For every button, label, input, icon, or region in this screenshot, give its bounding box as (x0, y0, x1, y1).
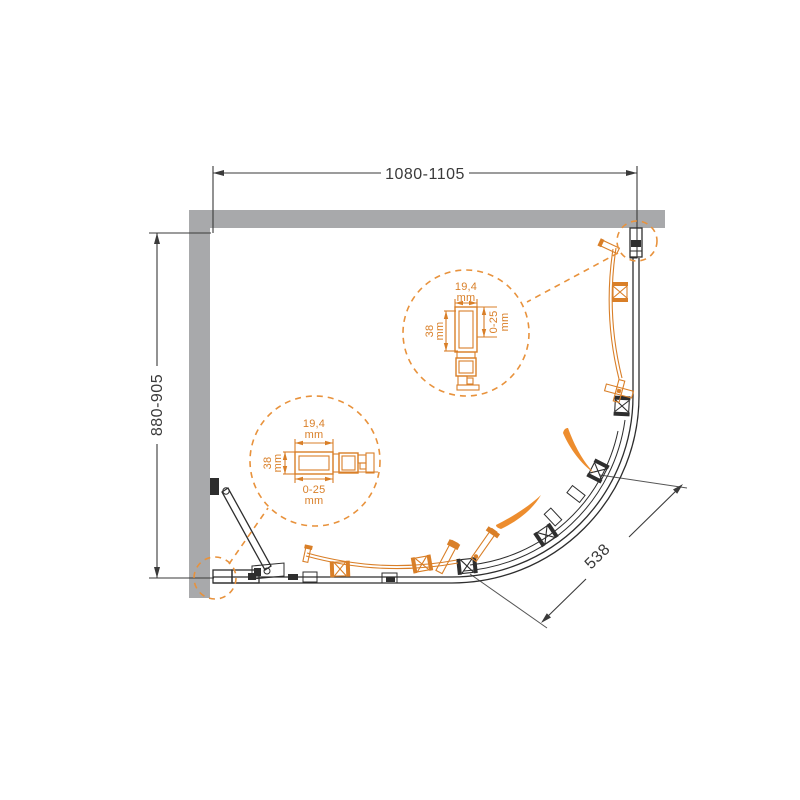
walls (189, 210, 665, 598)
door-bracket-orange (603, 377, 636, 405)
door-edge-profile-orange (434, 539, 461, 575)
shower-enclosure-plan-drawing: 1080-1105 880-905 538 (0, 0, 800, 800)
arrowhead (154, 567, 160, 578)
detail-width-unit: mm (305, 429, 324, 441)
door-top-cap (597, 238, 619, 254)
profile-foot (360, 463, 366, 469)
profile-tube2-inner (342, 456, 355, 470)
rail-clamp (386, 577, 395, 582)
rail-clamp (288, 574, 298, 580)
arrow-left-icon (496, 495, 541, 529)
dimension-opening-label: 538 (582, 541, 614, 573)
profile-end-cap (366, 453, 374, 473)
top-wall (189, 210, 665, 228)
roller-icon (613, 396, 630, 417)
roller-icon (586, 458, 609, 483)
profile-joint (333, 454, 339, 472)
arrow-up-icon (563, 428, 594, 473)
dimension-width-label: 1080-1105 (385, 166, 465, 183)
technical-drawing-page: 1080-1105 880-905 538 (0, 0, 800, 800)
detail-right-profile: 19,4 mm 38 mm 0-25 mm (424, 281, 511, 390)
door-glass-edge (612, 248, 622, 378)
dimension-line (629, 486, 681, 537)
dimension-depth-label: 880-905 (149, 374, 166, 436)
detail-height-unit: mm (272, 454, 284, 473)
left-wall (189, 210, 210, 598)
profile-tube-inner (299, 456, 329, 470)
profile-base (457, 385, 479, 390)
detail-bottom-profile: 19,4 mm 38 mm 0-25 mm (262, 418, 378, 507)
door-glass-edge (307, 553, 457, 566)
profile-tube2-inner (459, 361, 473, 373)
detail-range-unit: mm (305, 495, 324, 507)
callouts (194, 221, 657, 599)
profile-foot (467, 378, 473, 384)
profile-tube (295, 452, 333, 474)
profile-clamp (631, 240, 641, 247)
profile-foot (458, 376, 467, 385)
arrowhead (154, 233, 160, 244)
bracket-clamp (254, 568, 261, 576)
dimension-diagonal-opening: 538 (470, 475, 687, 628)
profile-tube-inner (459, 311, 473, 348)
roller-icon-orange (411, 554, 433, 573)
profile-foot (358, 455, 366, 463)
wall-profile-top-right (630, 228, 642, 258)
roller-icon-orange (612, 282, 628, 302)
extension-line (470, 574, 547, 628)
pivot-door (210, 478, 284, 579)
detail-range-unit: mm (499, 313, 511, 332)
arrowhead (213, 170, 224, 176)
glass-panels-and-track (213, 258, 639, 583)
door-edge-stop (544, 508, 561, 526)
profile-tube (455, 307, 477, 352)
dimension-line (543, 579, 586, 621)
extension-line (600, 475, 687, 488)
callout-leader-line (527, 253, 618, 302)
pivot-door-panel (222, 488, 271, 570)
arrowhead (626, 170, 637, 176)
wall-hinge-bracket (210, 478, 219, 495)
detail-width-unit: mm (457, 292, 476, 304)
sliding-door-right-open (597, 238, 635, 405)
detail-height-unit: mm (434, 322, 446, 341)
profile-joint (457, 352, 475, 358)
door-edge-stop (567, 486, 585, 503)
